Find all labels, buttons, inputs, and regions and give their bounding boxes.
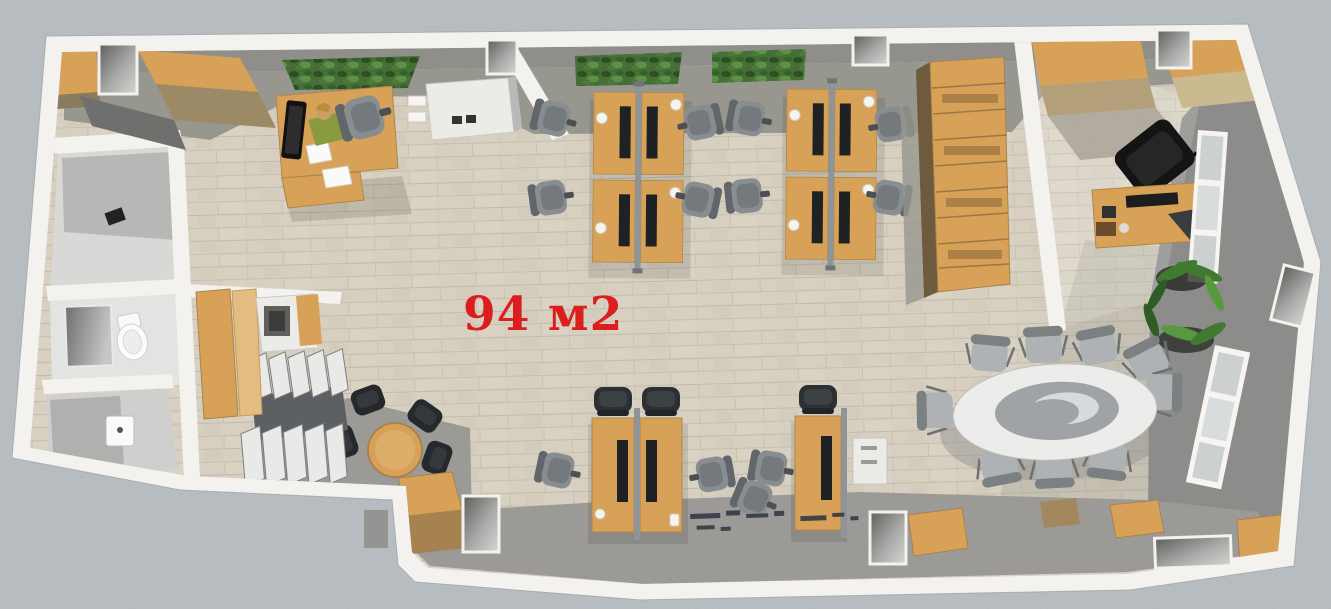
- conference-end-chair: [916, 386, 953, 435]
- door-top-right: [1157, 30, 1191, 68]
- door-entrance-second: [870, 512, 906, 564]
- shower-mirror: [65, 305, 113, 367]
- door-top-mid-right: [853, 35, 888, 65]
- door-top-left: [99, 44, 137, 94]
- door-top-mid-left: [487, 40, 517, 74]
- bookshelf: [900, 57, 1010, 305]
- paper: [322, 166, 352, 188]
- paper: [306, 142, 332, 164]
- door-entrance-main: [463, 496, 499, 552]
- window-greenery-1: [282, 56, 420, 90]
- floor-plan-svg: 94 м2: [0, 0, 1331, 609]
- window-greenery-2: [575, 52, 682, 86]
- office-cabinet: [1032, 36, 1148, 86]
- area-label: 94 м2: [463, 287, 623, 342]
- window-greenery-3: [712, 49, 806, 83]
- floor-plan-render: 94 м2: [0, 0, 1331, 609]
- exterior-step: [364, 510, 388, 548]
- door-bottom-right: [1154, 536, 1231, 569]
- storage-room: [50, 146, 180, 300]
